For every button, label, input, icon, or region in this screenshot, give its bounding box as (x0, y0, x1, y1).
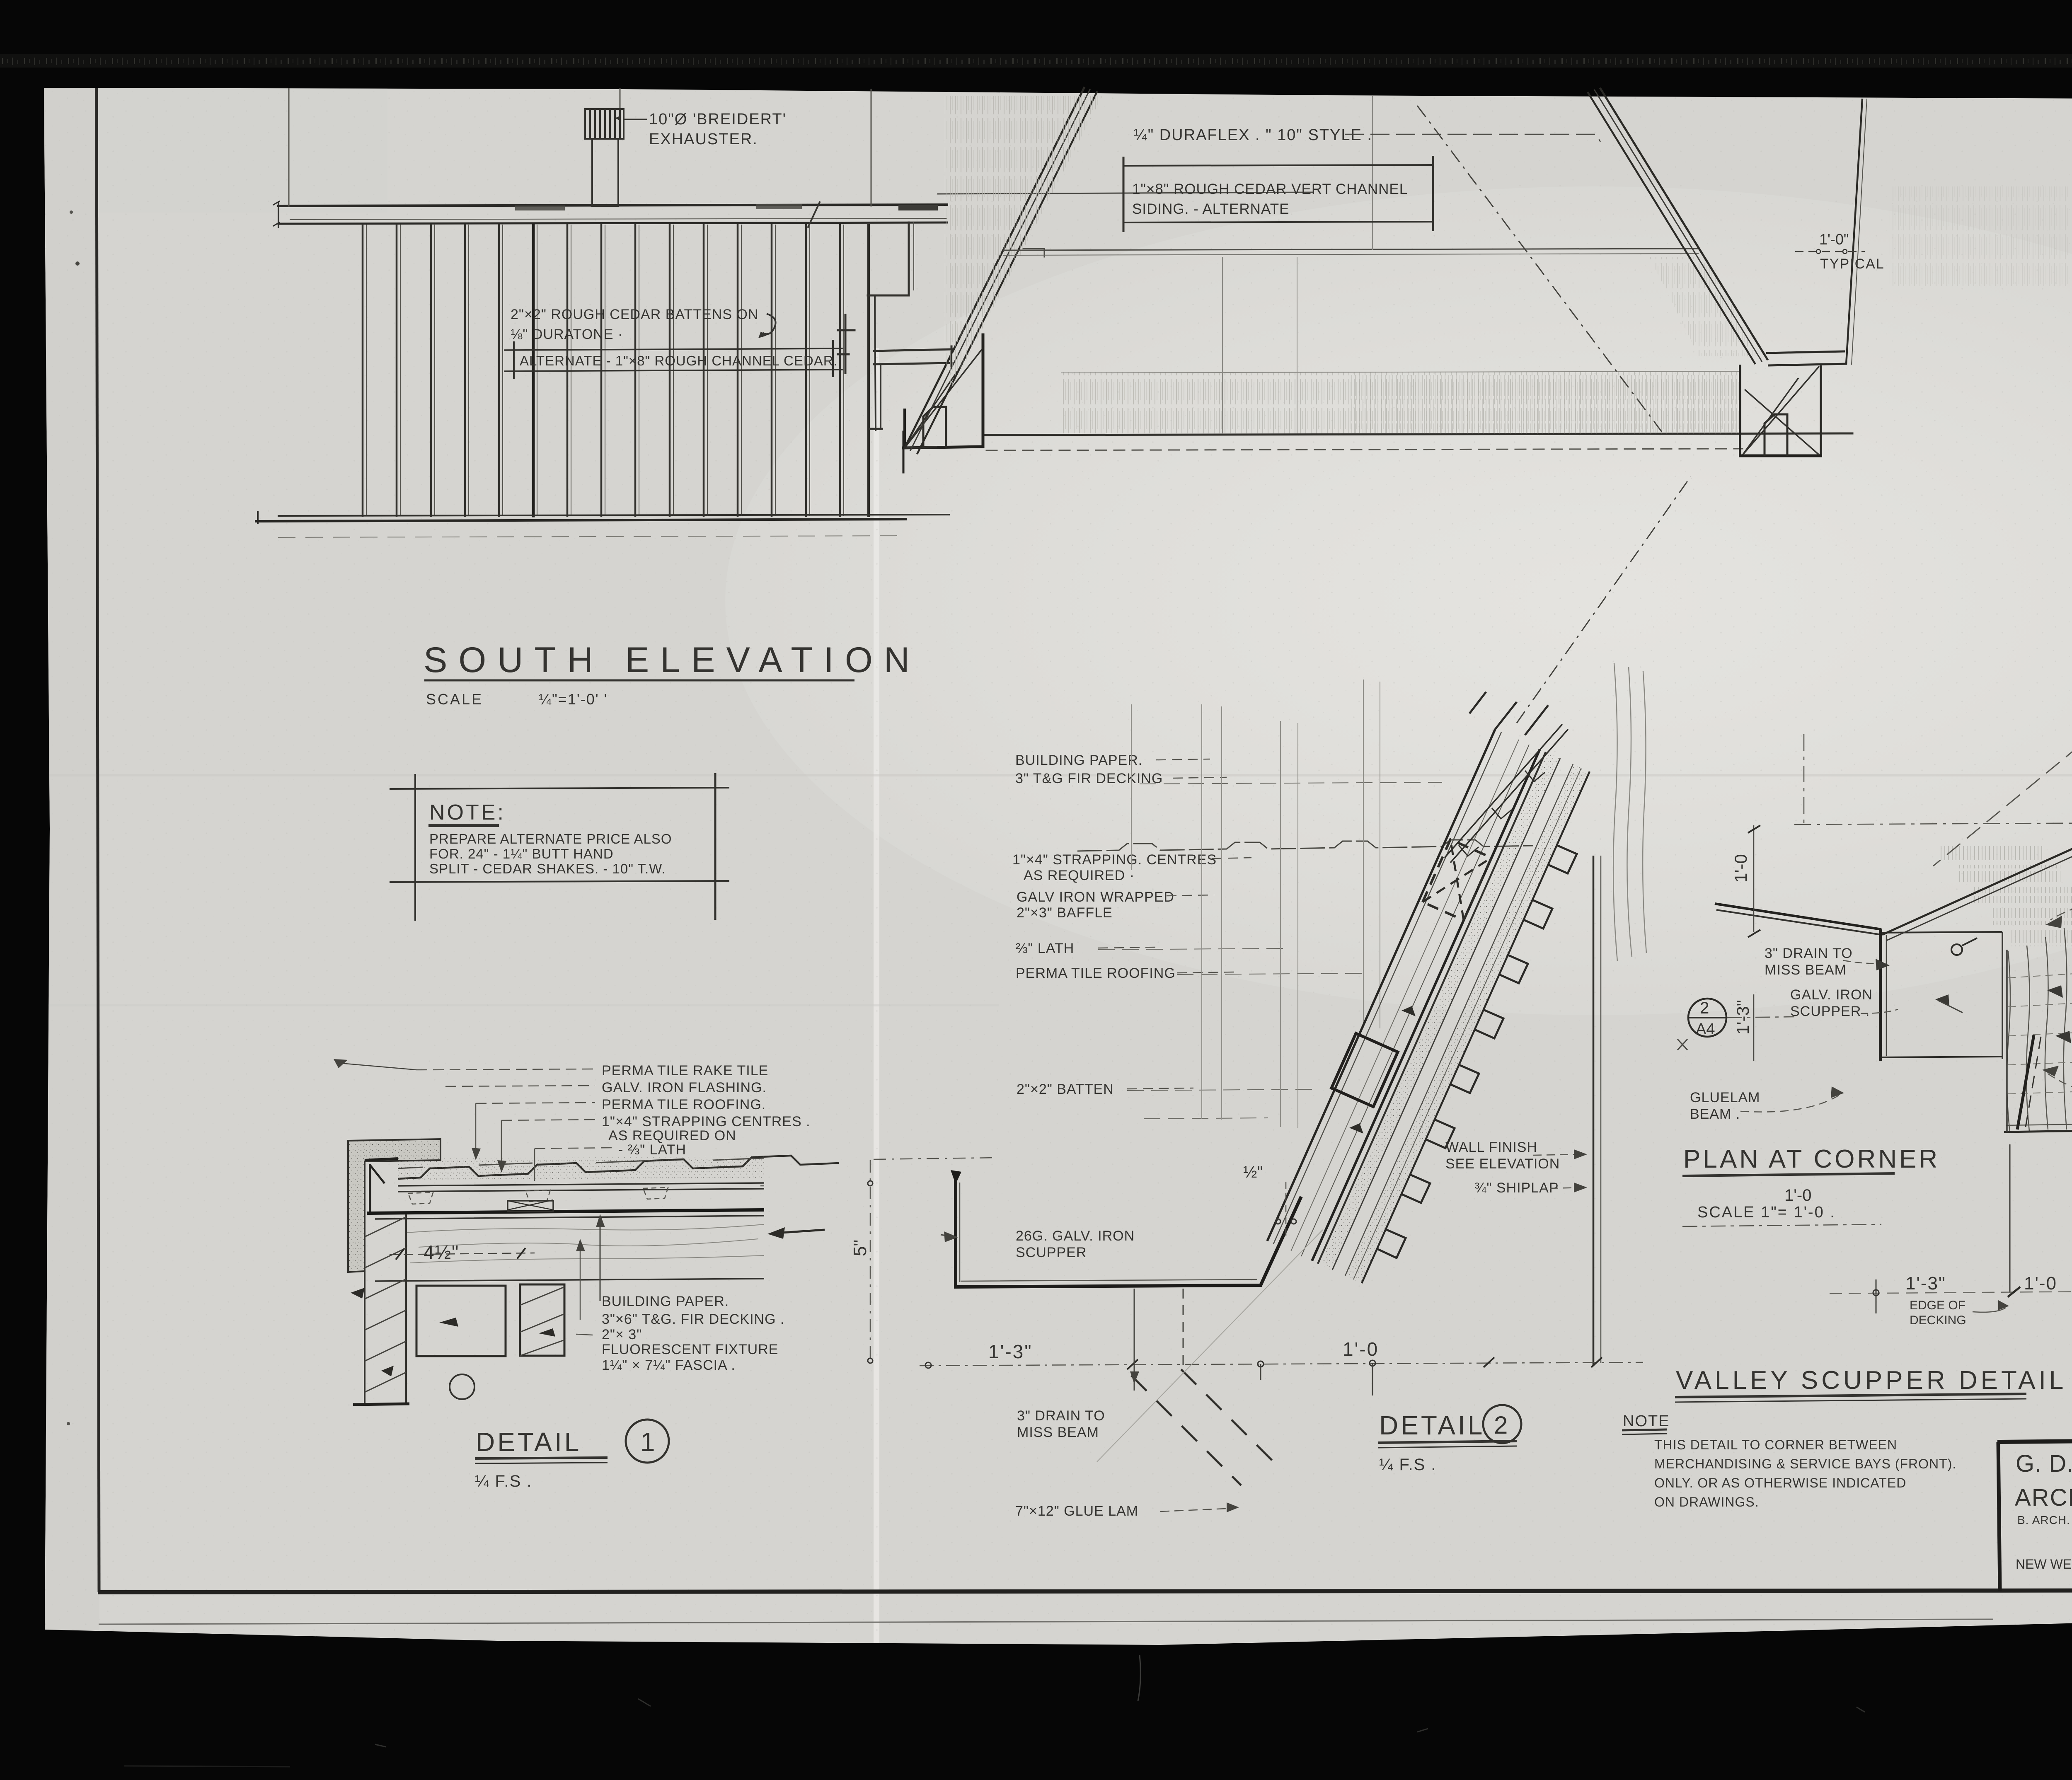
svg-text:5": 5" (850, 1240, 870, 1256)
svg-text:1'-0": 1'-0" (1819, 231, 1849, 248)
svg-text:1"×8" ROUGH CEDAR VERT CHANNE: 1"×8" ROUGH CEDAR VERT CHANNEL (1132, 181, 1408, 197)
svg-text:ONLY. OR AS OTHERWISE INDICAT: ONLY. OR AS OTHERWISE INDICATED (1654, 1475, 1906, 1490)
svg-text:¼ F.S .: ¼ F.S . (1379, 1456, 1437, 1474)
svg-text:2: 2 (1494, 1411, 1508, 1439)
svg-text:SCUPPER: SCUPPER (1016, 1245, 1087, 1260)
svg-text:⅔" LATH: ⅔" LATH (1016, 941, 1074, 956)
svg-text:3" DRAIN TO: 3" DRAIN TO (1017, 1408, 1105, 1424)
svg-text:DETAIL: DETAIL (1379, 1410, 1485, 1440)
svg-text:1¼" × 7¼" FASCIA .: 1¼" × 7¼" FASCIA . (602, 1357, 736, 1373)
svg-text:GALV IRON WRAPPED: GALV IRON WRAPPED (1017, 889, 1174, 905)
svg-text:10"Ø 'BREIDERT': 10"Ø 'BREIDERT' (649, 111, 787, 128)
svg-text:SEE ELEVATION: SEE ELEVATION (1445, 1156, 1560, 1172)
svg-text:1"×4" STRAPPING CENTRES .: 1"×4" STRAPPING CENTRES . (602, 1114, 811, 1129)
svg-text:MISS BEAM: MISS BEAM (1017, 1424, 1099, 1440)
svg-text:NEW WESTMINSTER B.C PHONE 52: NEW WESTMINSTER B.C PHONE 526-7958 (2016, 1557, 2072, 1572)
svg-text:PLAN AT CORNER: PLAN AT CORNER (1683, 1145, 1940, 1173)
svg-text:VALLEY SCUPPER DETAIL: VALLEY SCUPPER DETAIL (1676, 1366, 2067, 1395)
svg-text:WALL FINISH: WALL FINISH (1445, 1139, 1537, 1155)
svg-text:⅛" DURATONE ·: ⅛" DURATONE · (511, 326, 623, 342)
svg-text:B. ARCH. M.R.A.I.C.: B. ARCH. M.R.A.I.C. (2017, 1514, 2072, 1526)
svg-text:ARCHITECT: ARCHITECT (2015, 1484, 2072, 1511)
svg-text:EXHAUSTER.: EXHAUSTER. (649, 131, 758, 148)
svg-text:2"×2" ROUGH CEDAR BATTENS ON: 2"×2" ROUGH CEDAR BATTENS ON (511, 307, 758, 322)
svg-text:NOTE: NOTE (1623, 1412, 1670, 1430)
svg-text:1'-3": 1'-3" (1905, 1273, 1946, 1294)
svg-text:¼" DURAFLEX . " 10" STYLE .: ¼" DURAFLEX . " 10" STYLE . (1134, 126, 1372, 144)
svg-text:PREPARE ALTERNATE PRICE ALSO: PREPARE ALTERNATE PRICE ALSO (429, 831, 672, 846)
svg-text:26G. GALV. IRON: 26G. GALV. IRON (1016, 1228, 1135, 1244)
svg-text:1: 1 (640, 1427, 655, 1457)
svg-text:ON DRAWINGS.: ON DRAWINGS. (1654, 1495, 1759, 1509)
svg-text:PERMA TILE ROOFING: PERMA TILE ROOFING (1016, 965, 1176, 981)
svg-text:EDGE OF: EDGE OF (1910, 1299, 1965, 1312)
svg-text:SPLIT - CEDAR SHAKES. - 10" T.: SPLIT - CEDAR SHAKES. - 10" T.W. (429, 861, 666, 876)
svg-text:FLUORESCENT FIXTURE: FLUORESCENT FIXTURE (602, 1342, 778, 1357)
svg-text:¾" SHIPLAP: ¾" SHIPLAP (1474, 1180, 1559, 1196)
svg-text:PERMA TILE ROOFING.: PERMA TILE ROOFING. (602, 1097, 766, 1112)
svg-text:SCUPPER .: SCUPPER . (1790, 1004, 1870, 1019)
svg-text:GLUELAM: GLUELAM (1690, 1090, 1760, 1105)
svg-text:3"×6" T&G. FIR DECKING .: 3"×6" T&G. FIR DECKING . (602, 1311, 784, 1327)
svg-text:FOR. 24" - 1¼" BUTT HAND: FOR. 24" - 1¼" BUTT HAND (429, 846, 614, 861)
svg-text:2: 2 (1700, 999, 1709, 1017)
svg-text:½": ½" (1243, 1163, 1263, 1181)
svg-text:BUILDING PAPER.: BUILDING PAPER. (602, 1294, 729, 1309)
svg-text:3" DRAIN TO: 3" DRAIN TO (1765, 946, 1853, 961)
svg-text:¼"=1'-0' ': ¼"=1'-0' ' (539, 691, 608, 708)
svg-text:DETAIL: DETAIL (476, 1427, 581, 1457)
svg-text:2"×3" BAFFLE: 2"×3" BAFFLE (1017, 905, 1113, 921)
svg-text:1'-0: 1'-0 (1784, 1186, 1811, 1204)
svg-text:NOTE:: NOTE: (429, 801, 506, 825)
svg-text:SOUTH ELEVATION: SOUTH ELEVATION (424, 640, 921, 680)
svg-text:2"× 3": 2"× 3" (602, 1327, 642, 1342)
svg-text:1'-0: 1'-0 (1731, 854, 1750, 883)
svg-text:A4: A4 (1696, 1021, 1715, 1038)
svg-text:GALV. IRON FLASHING.: GALV. IRON FLASHING. (602, 1080, 767, 1096)
svg-text:DECKING: DECKING (1910, 1313, 1966, 1327)
svg-text:7"×12" GLUE LAM: 7"×12" GLUE LAM (1015, 1503, 1138, 1519)
svg-text:GALV. IRON: GALV. IRON (1790, 987, 1873, 1003)
svg-text:SCALE: SCALE (426, 691, 483, 708)
svg-text:2"×2" BATTEN: 2"×2" BATTEN (1017, 1081, 1114, 1097)
svg-text:PERMA TILE RAKE TILE: PERMA TILE RAKE TILE (602, 1063, 768, 1079)
svg-text:1"×4" STRAPPING. CENTRES: 1"×4" STRAPPING. CENTRES (1012, 852, 1217, 868)
svg-text:¼ F.S .: ¼ F.S . (475, 1472, 533, 1490)
svg-text:- ⅔" LATH: - ⅔" LATH (618, 1142, 686, 1158)
svg-text:MISS BEAM: MISS BEAM (1765, 962, 1847, 978)
svg-text:ALTERNATE - 1"×8" ROUGH CHANN: ALTERNATE - 1"×8" ROUGH CHANNEL CEDAR. (520, 353, 838, 368)
svg-text:AS REQUIRED ON: AS REQUIRED ON (608, 1128, 736, 1144)
svg-text:SCALE 1"= 1'-0 .: SCALE 1"= 1'-0 . (1697, 1204, 1836, 1221)
svg-text:TYPICAL: TYPICAL (1820, 256, 1885, 272)
svg-text:BEAM .: BEAM . (1690, 1106, 1740, 1122)
svg-text:THIS DETAIL TO CORNER BETWEEN: THIS DETAIL TO CORNER BETWEEN (1654, 1437, 1897, 1452)
svg-text:SIDING. - ALTERNATE: SIDING. - ALTERNATE (1132, 201, 1289, 217)
svg-text:G. D. WYLIE: G. D. WYLIE (2016, 1450, 2072, 1477)
svg-text:1'-0: 1'-0 (2024, 1273, 2057, 1294)
svg-text:MERCHANDISING & SERVICE BAYS (: MERCHANDISING & SERVICE BAYS (FRONT). (1654, 1456, 1956, 1471)
svg-text:1'-0: 1'-0 (1343, 1338, 1379, 1360)
svg-text:1'-3": 1'-3" (988, 1341, 1033, 1362)
svg-text:4½": 4½" (424, 1241, 459, 1263)
svg-text:BUILDING PAPER.: BUILDING PAPER. (1015, 752, 1143, 768)
svg-text:AS REQUIRED ·: AS REQUIRED · (1024, 868, 1135, 883)
